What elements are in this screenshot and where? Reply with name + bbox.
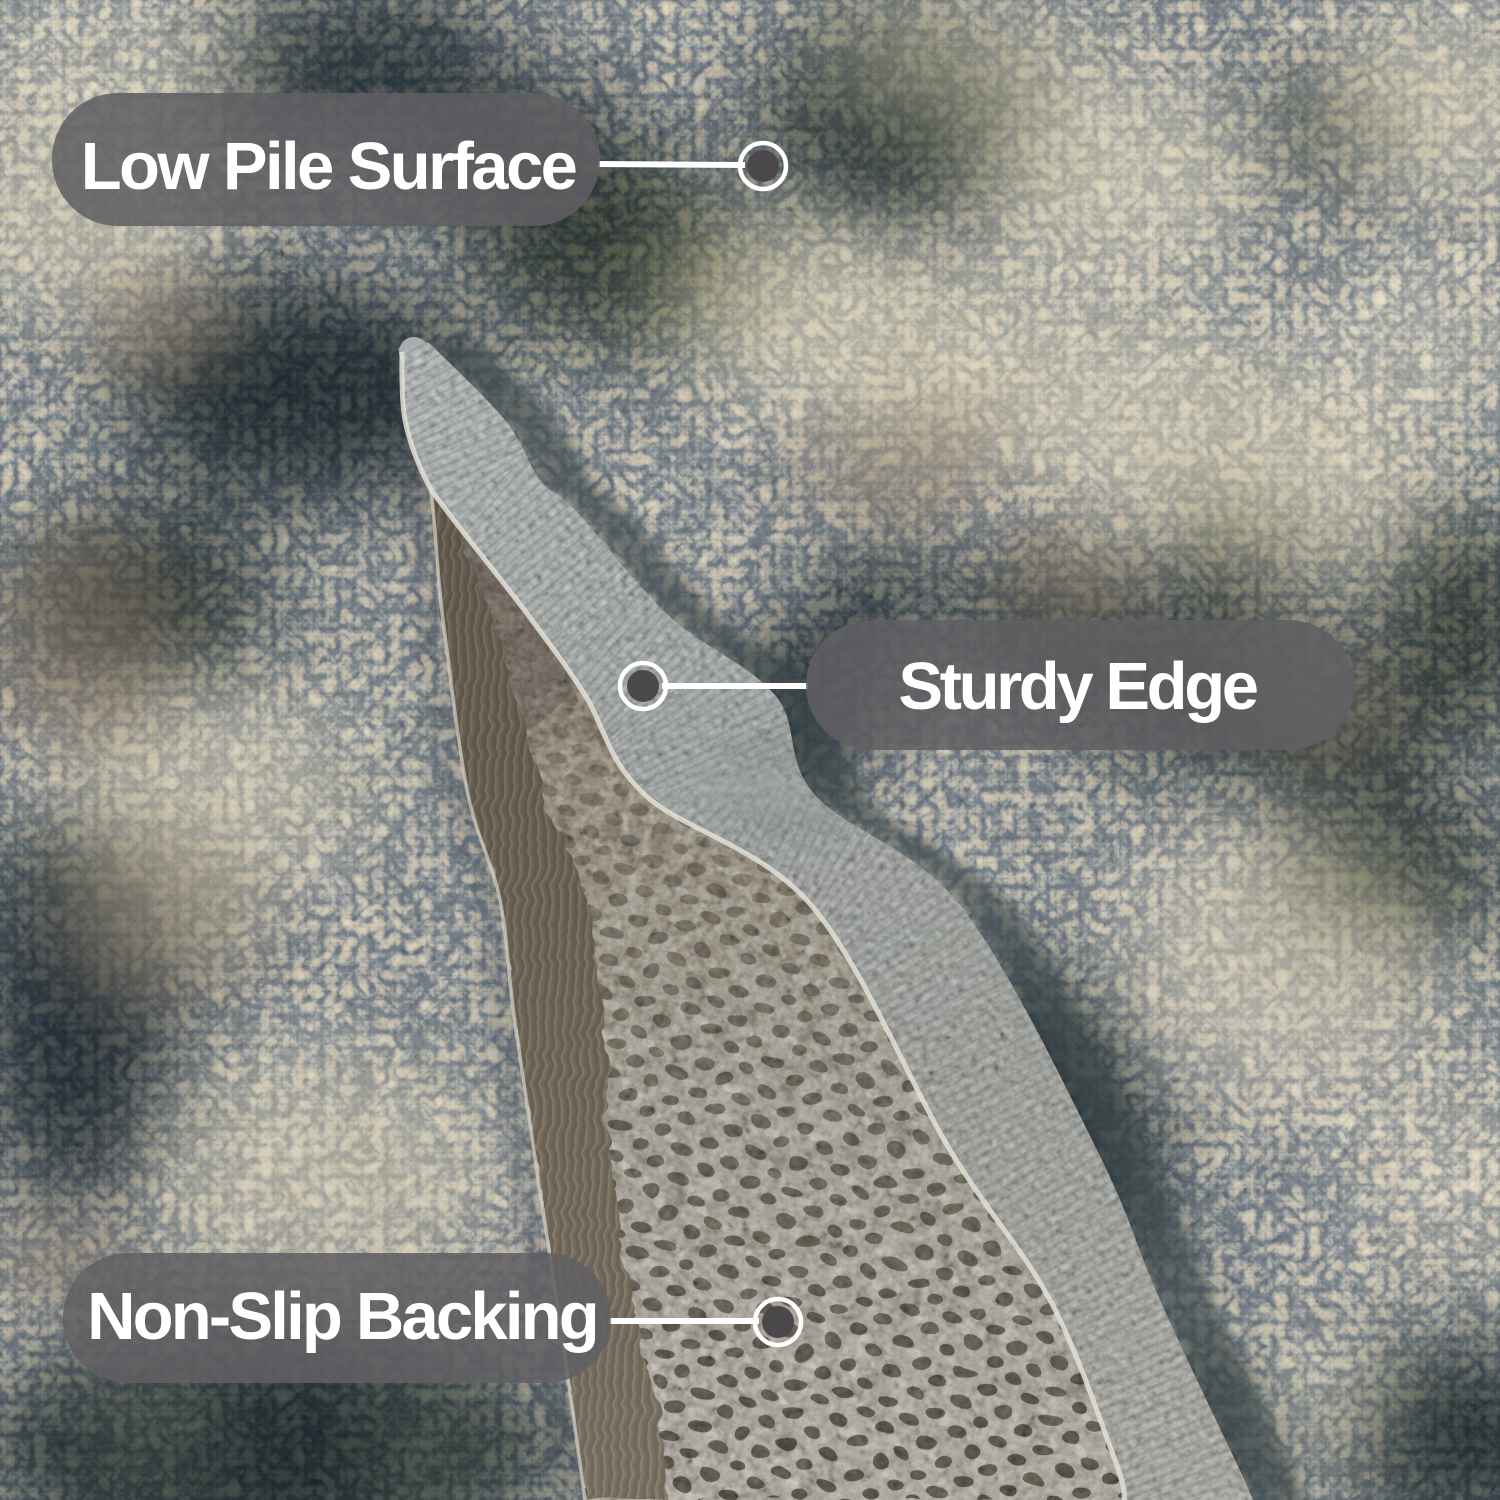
svg-text:Low Pile Surface: Low Pile Surface bbox=[81, 129, 576, 204]
svg-text:Non-Slip Backing: Non-Slip Backing bbox=[87, 1279, 597, 1354]
svg-text:Sturdy Edge: Sturdy Edge bbox=[898, 649, 1256, 724]
